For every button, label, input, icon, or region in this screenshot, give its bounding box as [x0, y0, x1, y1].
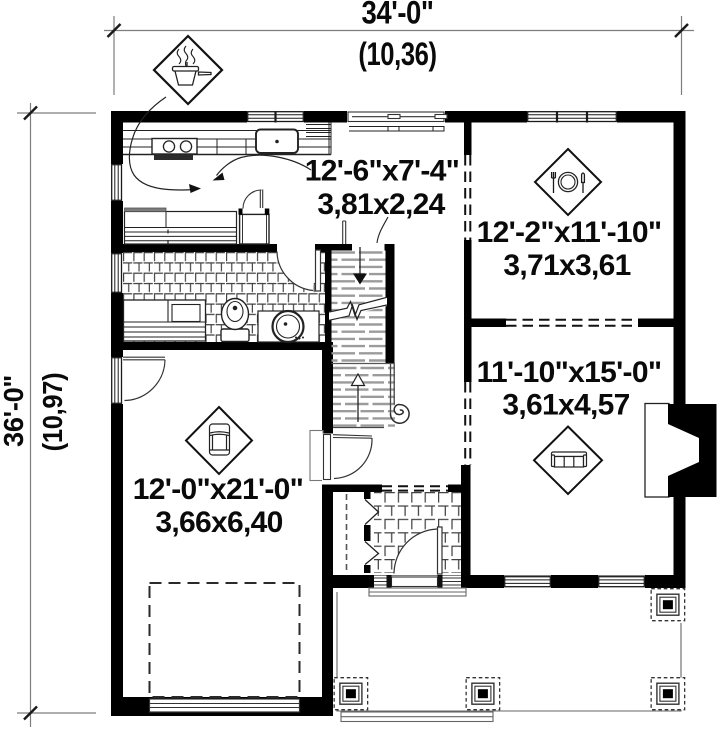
svg-text:36'-0": 36'-0": [0, 375, 29, 447]
svg-text:12'-6"x7'-4": 12'-6"x7'-4": [305, 155, 459, 188]
svg-text:3,71x3,61: 3,71x3,61: [503, 249, 630, 282]
svg-text:(10,97): (10,97): [37, 373, 68, 452]
svg-text:12'-0"x21'-0": 12'-0"x21'-0": [133, 473, 303, 506]
svg-text:3,66x6,40: 3,66x6,40: [155, 506, 282, 539]
svg-text:12'-2"x11'-10": 12'-2"x11'-10": [477, 216, 662, 249]
svg-text:34'-0": 34'-0": [361, 0, 433, 31]
svg-text:3,61x4,57: 3,61x4,57: [502, 389, 629, 422]
svg-text:(10,36): (10,36): [358, 37, 436, 72]
svg-text:11'-10"x15'-0": 11'-10"x15'-0": [477, 356, 662, 389]
svg-text:3,81x2,24: 3,81x2,24: [317, 188, 445, 221]
